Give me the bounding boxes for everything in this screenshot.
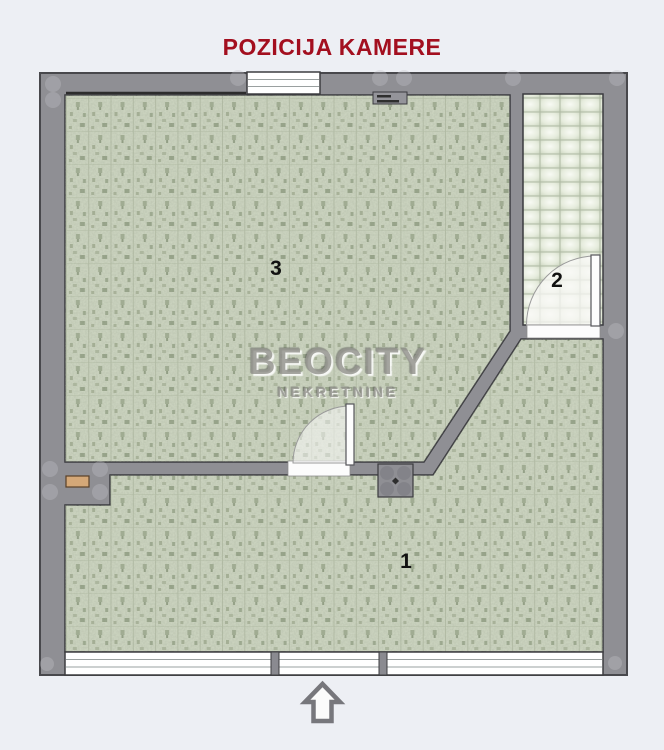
floor-plan-drawing [0, 0, 664, 750]
window-mullion [379, 652, 387, 675]
structural-column [378, 464, 413, 497]
wall-vent [373, 92, 407, 104]
room-3-floor-texture [65, 95, 510, 462]
room-2-label: 2 [551, 269, 563, 293]
room-3-label: 3 [270, 257, 282, 281]
entrance-arrow-icon [305, 684, 340, 721]
floor-plan-page: POZICIJA KAMERE [0, 0, 664, 750]
room-1-label: 1 [400, 550, 412, 574]
wall-niche-shelf [66, 476, 89, 487]
top-window [247, 72, 320, 94]
room-2-door-threshold [527, 325, 600, 338]
bottom-window [65, 652, 603, 675]
window-mullion [271, 652, 279, 675]
door-leaf [591, 255, 600, 326]
door-leaf [346, 404, 354, 465]
